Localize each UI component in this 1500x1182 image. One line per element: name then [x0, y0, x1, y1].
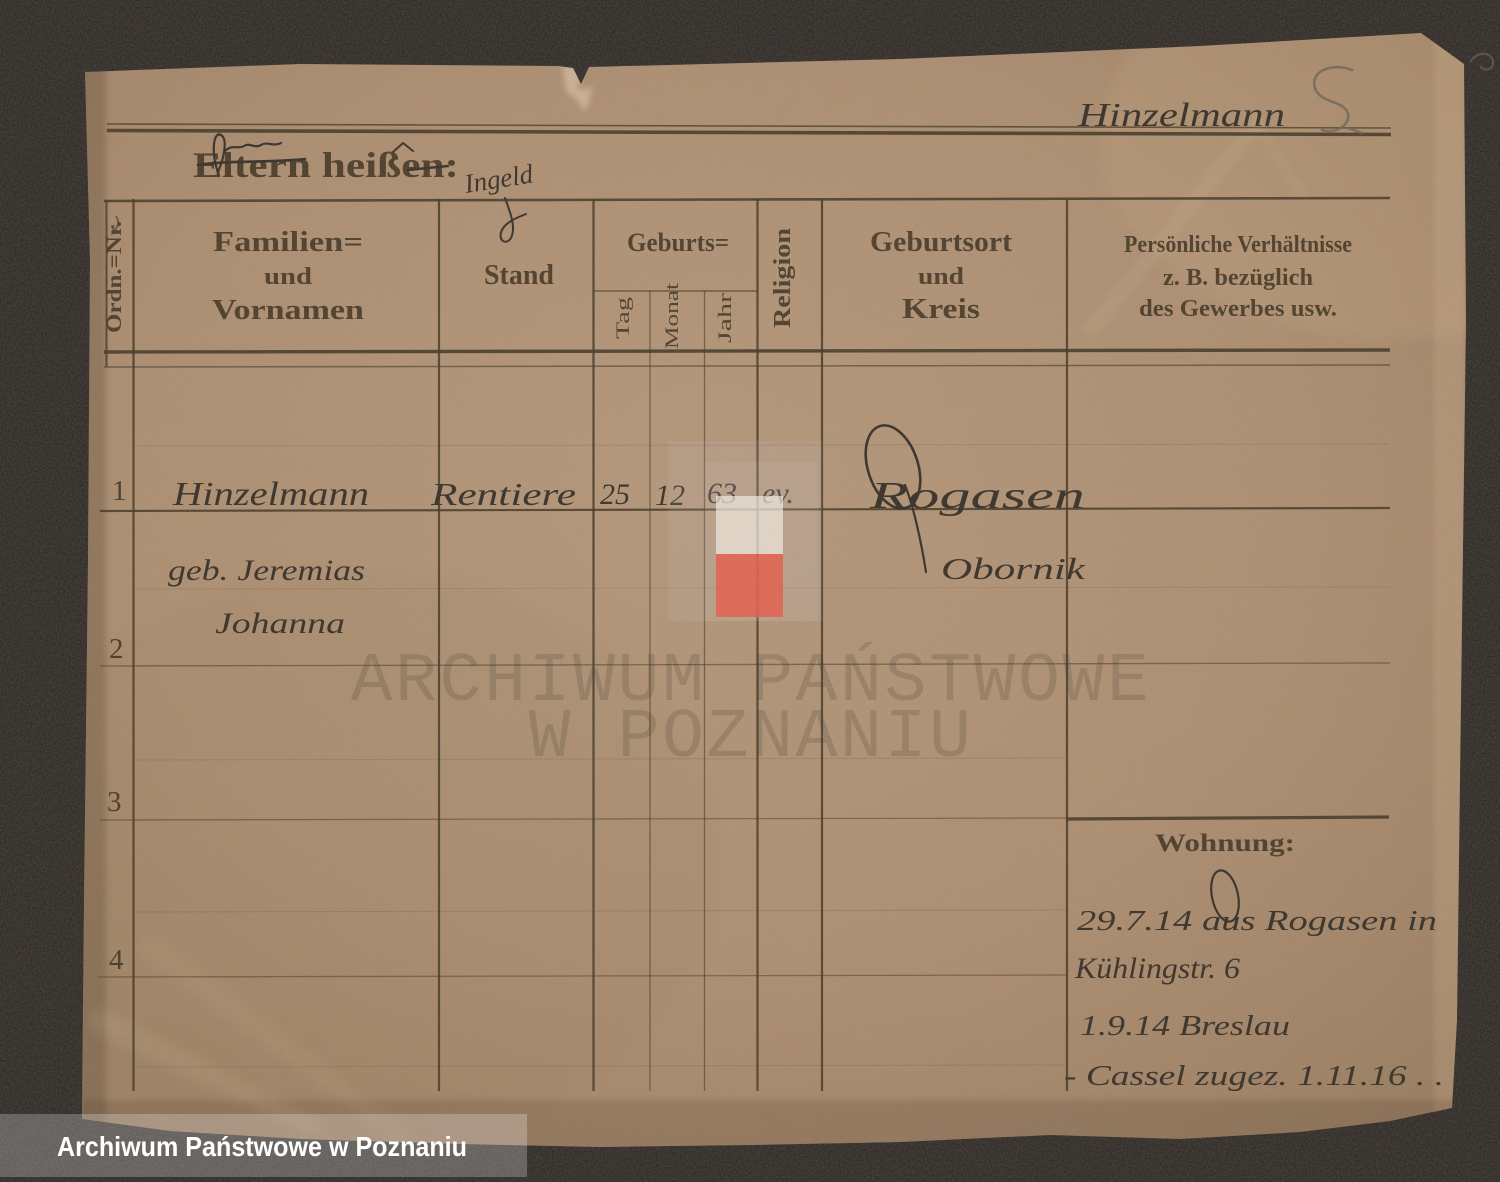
- svg-text:Archiwum Państwowe w Poznaniu: Archiwum Państwowe w Poznaniu: [57, 1131, 467, 1162]
